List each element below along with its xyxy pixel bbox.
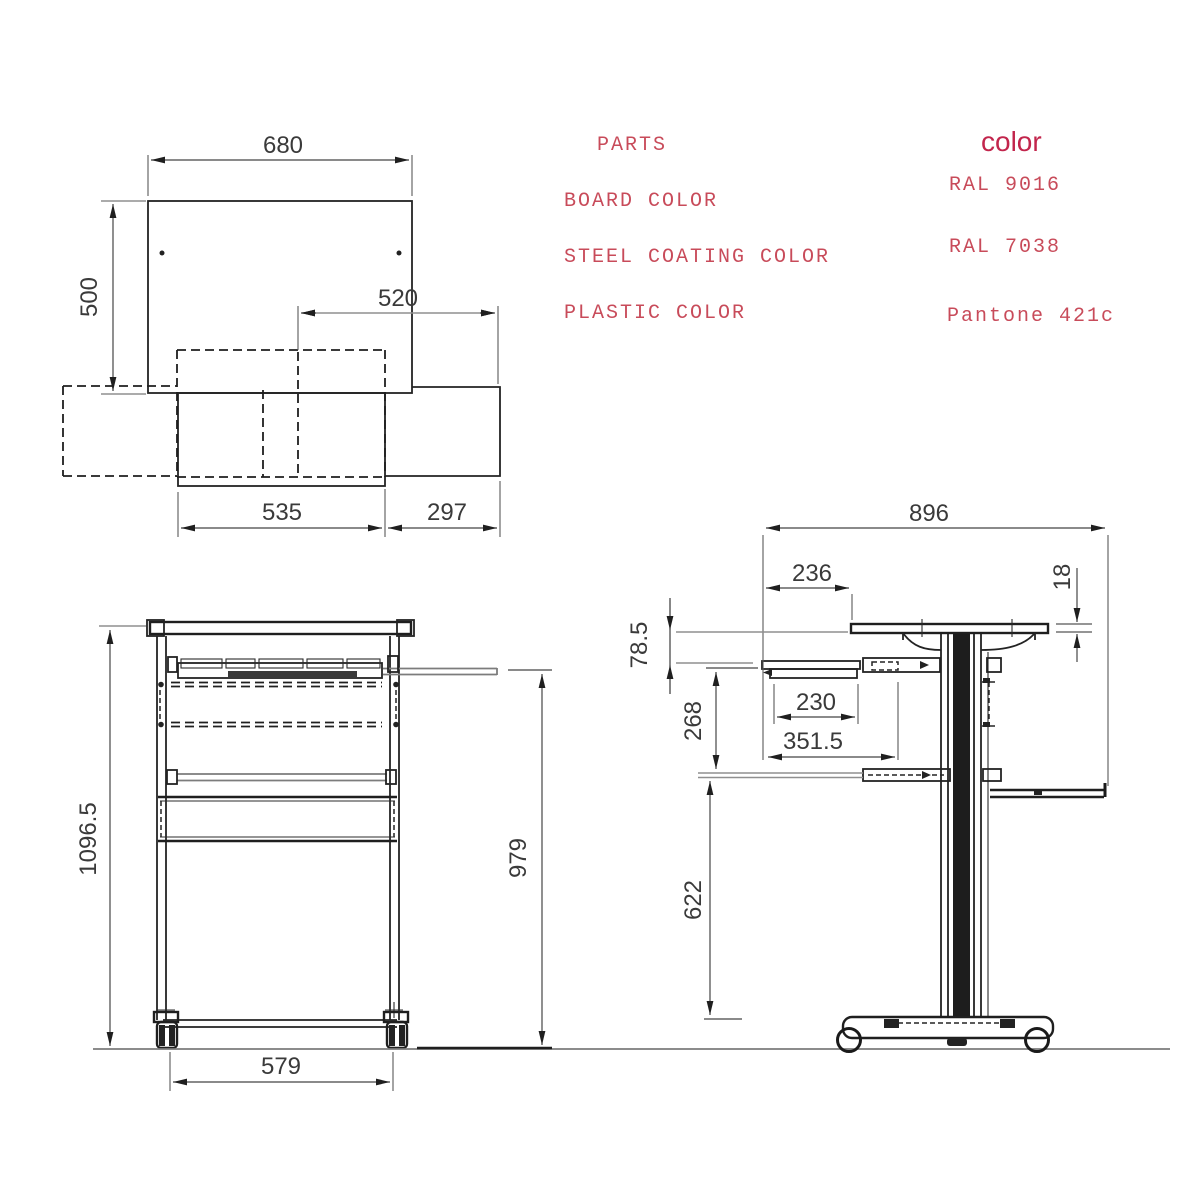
dim-500-label: 500 [76,277,103,317]
dim-board-to-tray: 78.5 [626,598,848,694]
front-hidden-shelves [158,682,399,728]
shelf-bracket-left [167,770,177,784]
table-row-value-plastic: Pantone 421c [947,305,1115,328]
dim-18-label: 18 [1049,564,1076,591]
front-keyboard-tray [168,656,497,678]
dim-tray-depth: 230 [774,684,858,724]
side-top-board [851,624,1048,633]
dim-520-label: 520 [378,285,418,312]
dim-tray-span: 520 [298,285,498,384]
dim-78-label: 78.5 [626,622,653,669]
technical-drawing-page: PARTS color BOARD COLOR RAL 9016 STEEL C… [0,0,1200,1200]
side-caster-front [838,1029,861,1052]
dim-board-thickness: 18 [1049,564,1092,662]
dim-979-label: 979 [505,838,532,878]
side-caster-rear [1026,1029,1049,1052]
dim-board-width: 680 [148,132,412,196]
ground-line [93,1048,1170,1049]
front-base [154,1002,408,1048]
dim-236-label: 236 [792,560,832,587]
table-header-parts: PARTS [597,134,667,157]
table-row-part-plastic: PLASTIC COLOR [564,302,746,325]
dim-shelf-width: 535 [178,489,385,537]
table-header-color: color [981,126,1042,157]
table-row-part-board: BOARD COLOR [564,190,718,213]
dim-680-label: 680 [263,132,303,159]
dim-622-label: 622 [680,880,707,920]
front-middle-shelf [167,770,396,784]
dim-535-label: 535 [262,499,302,526]
screw-hole-right [397,251,402,256]
front-lower-crossbox [158,797,397,841]
front-top-board [150,622,411,634]
dim-tray-extension: 297 [388,481,500,537]
side-tray-rear-bracket [987,658,1001,672]
tray-slide-bar [228,671,357,677]
dim-297-label: 297 [427,499,467,526]
side-hidden-bracket [982,678,996,727]
shelf-bracket-right [386,770,396,784]
side-column [941,634,988,1017]
side-view: 896 236 18 78.5 268 [626,500,1108,1052]
table-row-value-steel: RAL 7038 [949,236,1061,259]
front-view: 1096.5 979 579 [75,620,552,1091]
top-view: 680 500 520 535 297 [63,132,500,537]
desk-top-board-outline [148,201,412,393]
table-row-part-steel: STEEL COATING COLOR [564,246,830,269]
tray-bracket-left [168,657,177,672]
keyboard-tray-extended-outline [385,387,500,476]
side-rear-board [990,783,1105,797]
dim-tray-height: 979 [505,670,552,1045]
front-posts [157,636,399,1020]
dim-230-label: 230 [796,689,836,716]
dim-overall-height: 1096.5 [75,626,146,1046]
dim-1096-label: 1096.5 [75,802,102,875]
keyboard-tray-hidden-outline [177,350,385,477]
dim-896-label: 896 [909,500,949,527]
lower-shelf-outline [178,393,385,486]
technical-drawing: PARTS color BOARD COLOR RAL 9016 STEEL C… [0,0,1200,1200]
dim-tray-to-shelf: 268 [680,668,758,769]
dim-351-label: 351.5 [783,728,843,755]
dim-579-label: 579 [261,1053,301,1080]
dim-base-width: 579 [170,1052,393,1091]
dim-top-overhang: 236 [766,560,852,620]
cpu-holder-hidden-outline [63,386,177,476]
dim-268-label: 268 [680,701,707,741]
dim-board-depth: 500 [76,201,146,394]
table-row-value-board: RAL 9016 [949,174,1061,197]
front-caster-right [384,1012,408,1048]
side-base [838,1017,1054,1052]
parts-color-table: PARTS color BOARD COLOR RAL 9016 STEEL C… [564,126,1115,328]
dim-shelf-to-base: 622 [680,773,863,1019]
screw-hole-left [160,251,165,256]
